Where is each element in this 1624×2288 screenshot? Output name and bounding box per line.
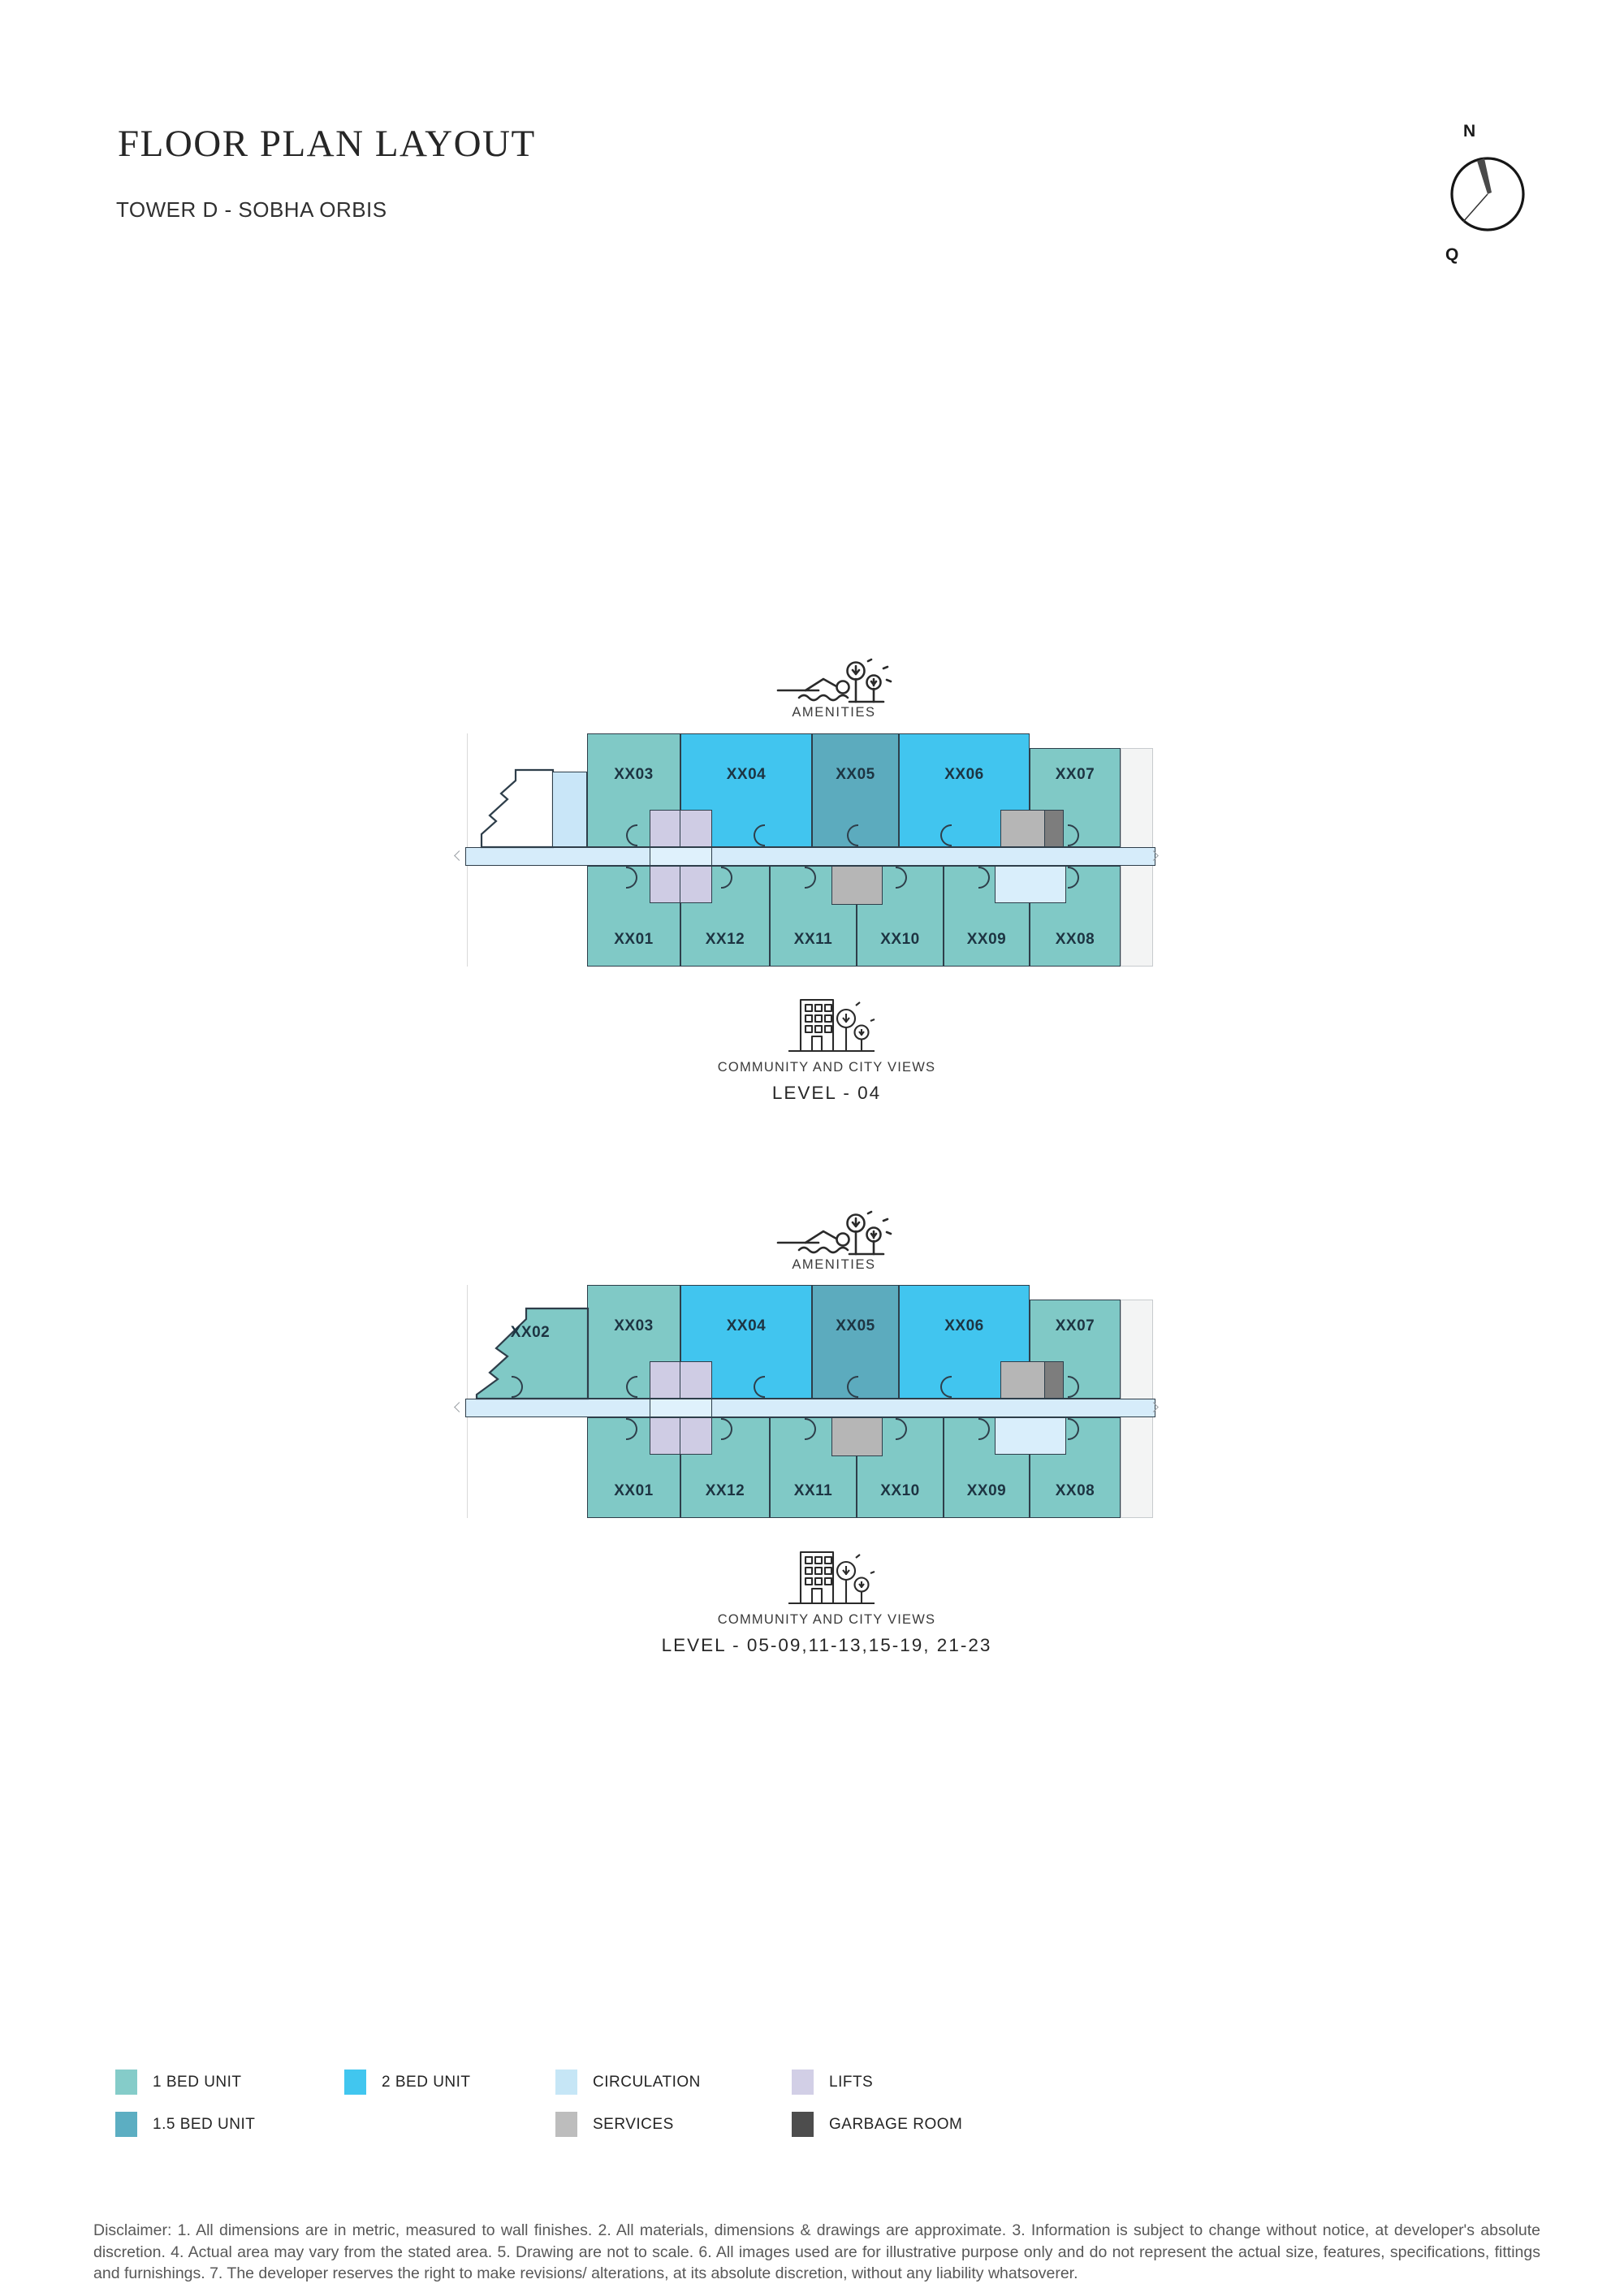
compass-north-label: N [1463,122,1475,141]
garbage-room [1044,810,1064,847]
circulation-lobby [995,1417,1066,1455]
lift [680,1417,712,1455]
services-room [1000,810,1046,847]
legend-swatch [115,2112,137,2137]
unit-label-XX09: XX09 [944,1482,1030,1500]
legend-label: 1.5 BED UNIT [153,2116,255,2134]
views-caption: COMMUNITY AND CITY VIEWS [615,1060,1038,1075]
unit-label-XX12: XX12 [680,1482,770,1500]
unit-label-XX05: XX05 [812,1317,899,1335]
legend-swatch [115,2070,137,2095]
disclaimer-text: Disclaimer: 1. All dimensions are in met… [93,2220,1540,2285]
legend-swatch [555,2112,577,2137]
page: FLOOR PLAN LAYOUT TOWER D - SOBHA ORBIS … [0,0,1624,2288]
unit-label-XX12: XX12 [680,931,770,949]
legend-label: CIRCULATION [593,2074,701,2091]
floor-plan-level-04: XX03XX04XX05XX06XX07XX01XX12XX11XX10XX09… [465,733,1155,967]
community-city-views-icon [786,996,877,1056]
lift-lobby-circulation [650,1399,712,1417]
unit-label-XX04: XX04 [680,766,812,784]
unit-label-XX10: XX10 [857,931,944,949]
lift [650,810,681,847]
lift-lobby-circulation [650,847,712,866]
unit-label-XX01: XX01 [587,1482,680,1500]
unit-label-XX06: XX06 [899,1317,1030,1335]
community-city-views-icon [786,1548,877,1608]
unit-label-XX06: XX06 [899,766,1030,784]
legend-swatch [792,2070,814,2095]
page-subtitle: TOWER D - SOBHA ORBIS [116,197,387,223]
amenities-icon [773,658,895,710]
services-room [831,866,883,905]
legend-label: 2 BED UNIT [382,2074,471,2091]
level-label: LEVEL - 04 [542,1083,1111,1104]
unit-label-XX11: XX11 [770,931,857,949]
lift [680,1361,712,1399]
circulation-lobby [995,866,1066,903]
unit-XX02 [465,1305,595,1403]
legend-swatch [555,2070,577,2095]
lift [680,866,712,903]
amenities-icon [773,1210,895,1262]
amenities-caption: AMENITIES [623,1257,1045,1273]
unit-label-XX03: XX03 [587,1317,680,1335]
views-caption: COMMUNITY AND CITY VIEWS [615,1612,1038,1628]
corridor-break-mark [454,1402,464,1412]
lift [650,1417,681,1455]
lift [650,866,681,903]
circulation-block [552,772,587,847]
unit-label-XX08: XX08 [1030,931,1121,949]
level-label: LEVEL - 05-09,11-13,15-19, 21-23 [542,1635,1111,1656]
corridor-break-mark [454,850,464,861]
compass-dial-icon [1439,143,1544,253]
services-room [1000,1361,1046,1399]
legend-label: SERVICES [593,2116,674,2134]
unit-label-XX08: XX08 [1030,1482,1121,1500]
page-title: FLOOR PLAN LAYOUT [118,122,536,166]
unit-label-XX07: XX07 [1030,766,1121,784]
unit-label-XX10: XX10 [857,1482,944,1500]
legend-label: 1 BED UNIT [153,2074,242,2091]
amenities-caption: AMENITIES [623,705,1045,720]
unit-label-XX11: XX11 [770,1482,857,1500]
unit-label-XX04: XX04 [680,1317,812,1335]
unit-label-XX09: XX09 [944,931,1030,949]
legend-swatch [344,2070,366,2095]
legend-label: LIFTS [829,2074,873,2091]
unit-label-XX01: XX01 [587,931,680,949]
lift [680,810,712,847]
legend-label: GARBAGE ROOM [829,2116,962,2134]
legend-swatch [792,2112,814,2137]
unit-label-XX03: XX03 [587,766,680,784]
services-room [831,1417,883,1456]
unit-label-XX07: XX07 [1030,1317,1121,1335]
compass: N Q [1439,122,1548,276]
floor-plan-levels-05-23: XX03XX04XX05XX06XX07XX01XX12XX11XX10XX09… [465,1285,1155,1518]
unit-label-XX05: XX05 [812,766,899,784]
compass-q-label: Q [1445,245,1458,265]
unit-label-XX02: XX02 [482,1324,579,1342]
lift [650,1361,681,1399]
garbage-room [1044,1361,1064,1399]
